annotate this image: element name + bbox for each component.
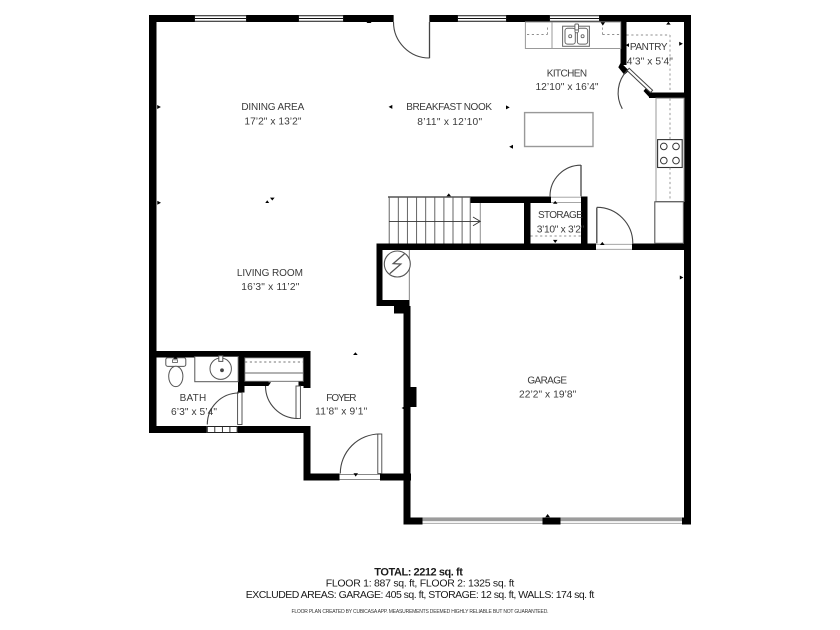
svg-text:11’8" x 9’1": 11’8" x 9’1"	[315, 407, 367, 418]
svg-text:KITCHEN: KITCHEN	[547, 69, 588, 80]
svg-text:DINING AREA: DINING AREA	[241, 102, 304, 113]
svg-text:TOTAL: 2212 sq. ft: TOTAL: 2212 sq. ft	[374, 566, 463, 578]
svg-text:GARAGE: GARAGE	[527, 375, 567, 386]
svg-text:PANTRY: PANTRY	[630, 42, 668, 53]
svg-text:FOYER: FOYER	[326, 393, 356, 404]
svg-text:FLOOR 1: 887 sq. ft, FLOOR 2:: FLOOR 1: 887 sq. ft, FLOOR 2: 1325 sq. f…	[326, 578, 515, 590]
svg-text:17’2" x 13’2": 17’2" x 13’2"	[244, 116, 301, 127]
svg-text:3’10" x 3’2": 3’10" x 3’2"	[537, 224, 585, 235]
svg-text:22’2" x 19’8": 22’2" x 19’8"	[519, 390, 577, 401]
svg-text:FLOOR PLAN CREATED BY CUBICASA: FLOOR PLAN CREATED BY CUBICASA APP. MEAS…	[292, 609, 549, 615]
svg-text:16’3" x 11’2": 16’3" x 11’2"	[241, 282, 299, 293]
svg-text:EXCLUDED AREAS: GARAGE: 405 sq: EXCLUDED AREAS: GARAGE: 405 sq. ft, STOR…	[246, 589, 595, 601]
svg-text:STORAGE: STORAGE	[538, 210, 583, 221]
svg-text:BREAKFAST NOOK: BREAKFAST NOOK	[406, 102, 492, 113]
svg-text:12’10" x 16’4": 12’10" x 16’4"	[535, 82, 598, 93]
svg-text:4’3" x 5’4": 4’3" x 5’4"	[627, 56, 673, 67]
svg-text:8’11" x 12’10": 8’11" x 12’10"	[417, 117, 482, 128]
svg-text:6’3" x 5’4": 6’3" x 5’4"	[171, 407, 217, 418]
svg-text:BATH: BATH	[180, 393, 207, 404]
svg-text:LIVING ROOM: LIVING ROOM	[237, 268, 303, 279]
